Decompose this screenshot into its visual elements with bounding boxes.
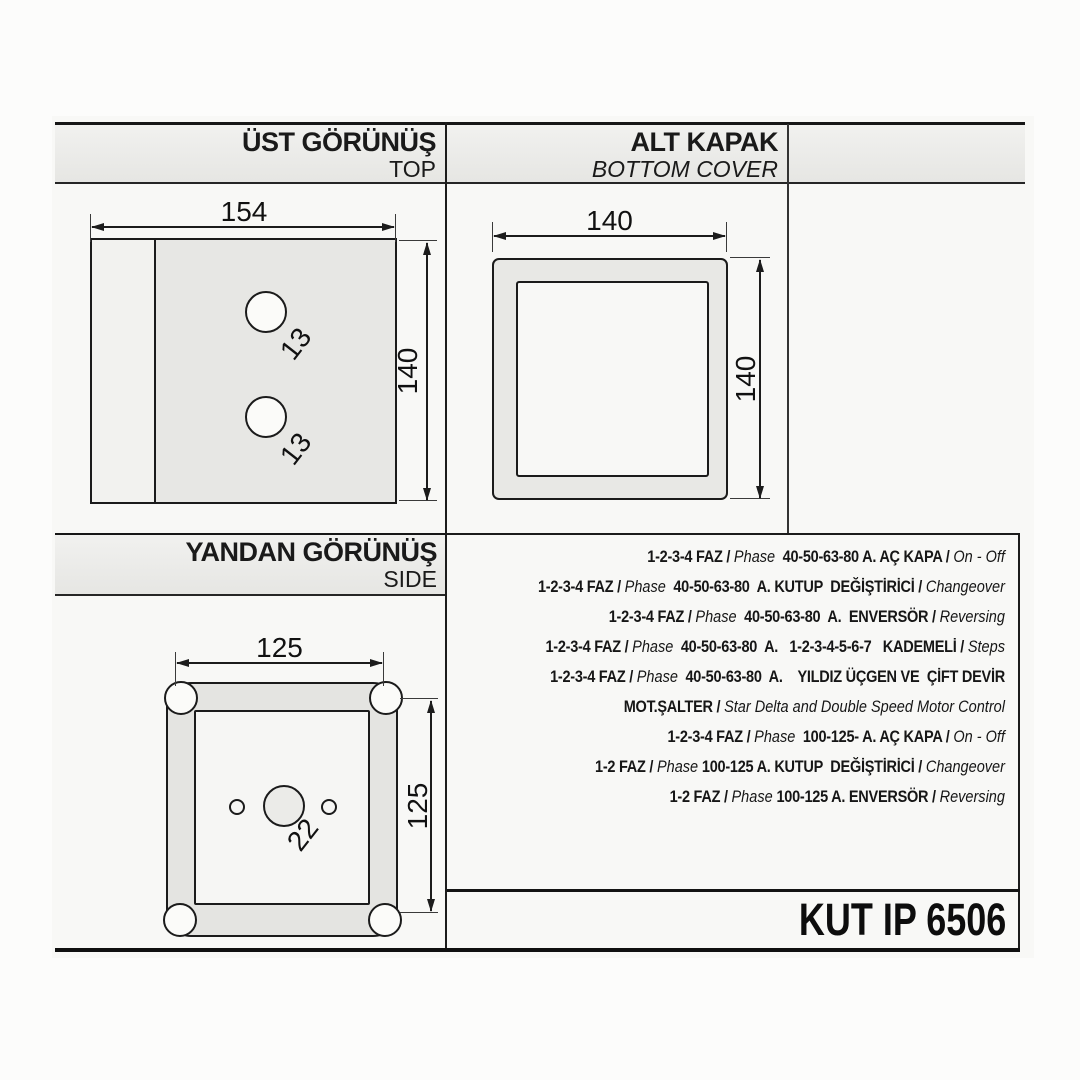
spec-line: 1-2-3-4 FAZ / Phase 40-50-63-80 A. YILDI… [515,662,1012,692]
top-view-flange [92,240,156,502]
extension-line [400,698,438,699]
model-number: KUT IP 6506 [799,894,1006,946]
extension-line [400,912,438,913]
extension-line [726,222,727,252]
top-view-body [90,238,397,504]
spec-line: MOT.ŞALTER / Star Delta and Double Speed… [515,692,1012,722]
bottom-cover-subtitle: BOTTOM COVER [447,157,778,182]
side-view-width-label: 125 [177,632,382,664]
side-view-title: YANDAN GÖRÜNÜŞ [55,537,437,567]
bottom-cover-opening [516,281,709,477]
bottom-cover-header: ALT KAPAK BOTTOM COVER [447,125,787,182]
side-view-small-hole [229,799,245,815]
spec-box-top-rule [447,533,1020,535]
extension-line [730,498,770,499]
spec-line: 1-2-3-4 FAZ / Phase 40-50-63-80 A. KUTUP… [515,572,1012,602]
top-view-subtitle: TOP [55,157,436,182]
top-view-header: ÜST GÖRÜNÜŞ TOP [55,125,445,182]
top-view-hole-top [245,291,287,333]
extension-line [730,257,770,258]
top-view-height-label: 140 [393,343,423,399]
extension-line [175,652,176,686]
side-view-corner-hole [163,903,197,937]
side-view-header-cell: YANDAN GÖRÜNÜŞ SIDE [55,535,446,594]
spec-line: 1-2-3-4 FAZ / Phase 40-50-63-80 A. 1-2-3… [515,632,1012,662]
spec-line: 1-2-3-4 FAZ / Phase 100-125- A. AÇ KAPA … [515,722,1012,752]
bottom-cover-width-label: 140 [494,205,725,237]
bottom-cover-title: ALT KAPAK [447,127,778,157]
spec-list: 1-2-3-4 FAZ / Phase 40-50-63-80 A. AÇ KA… [447,536,1012,886]
top-view-title: ÜST GÖRÜNÜŞ [55,127,436,157]
side-view-corner-hole [368,903,402,937]
side-view-small-hole [321,799,337,815]
side-view-corner-hole [369,681,403,715]
bottom-cover-height-label: 140 [731,351,761,407]
spec-line: 1-2-3-4 FAZ / Phase 40-50-63-80 A. ENVER… [515,602,1012,632]
model-band: KUT IP 6506 [447,892,1012,948]
side-view-corner-hole [164,681,198,715]
extension-line [399,240,437,241]
extension-line [383,652,384,686]
spec-line: 1-2 FAZ / Phase 100-125 A. ENVERSÖR / Re… [515,782,1012,812]
top-view-hole-bottom [245,396,287,438]
top-view-height-dim-line [426,243,428,500]
extension-line [395,214,396,242]
side-view-header: YANDAN GÖRÜNÜŞ SIDE [55,533,446,596]
bottom-border [55,948,1020,952]
side-view-height-label: 125 [403,778,433,834]
datasheet-page: ÜST GÖRÜNÜŞ TOP ALT KAPAK BOTTOM COVER Y… [0,0,1080,1080]
header-band: ÜST GÖRÜNÜŞ TOP ALT KAPAK BOTTOM COVER [55,122,1025,184]
bottom-cover-cell-border [787,124,789,534]
side-view-subtitle: SIDE [55,567,437,592]
spec-line: 1-2 FAZ / Phase 100-125 A. KUTUP DEĞİŞTİ… [515,752,1012,782]
top-view-width-label: 154 [93,196,395,228]
extension-line [399,500,437,501]
spec-line: 1-2-3-4 FAZ / Phase 40-50-63-80 A. AÇ KA… [515,542,1012,572]
